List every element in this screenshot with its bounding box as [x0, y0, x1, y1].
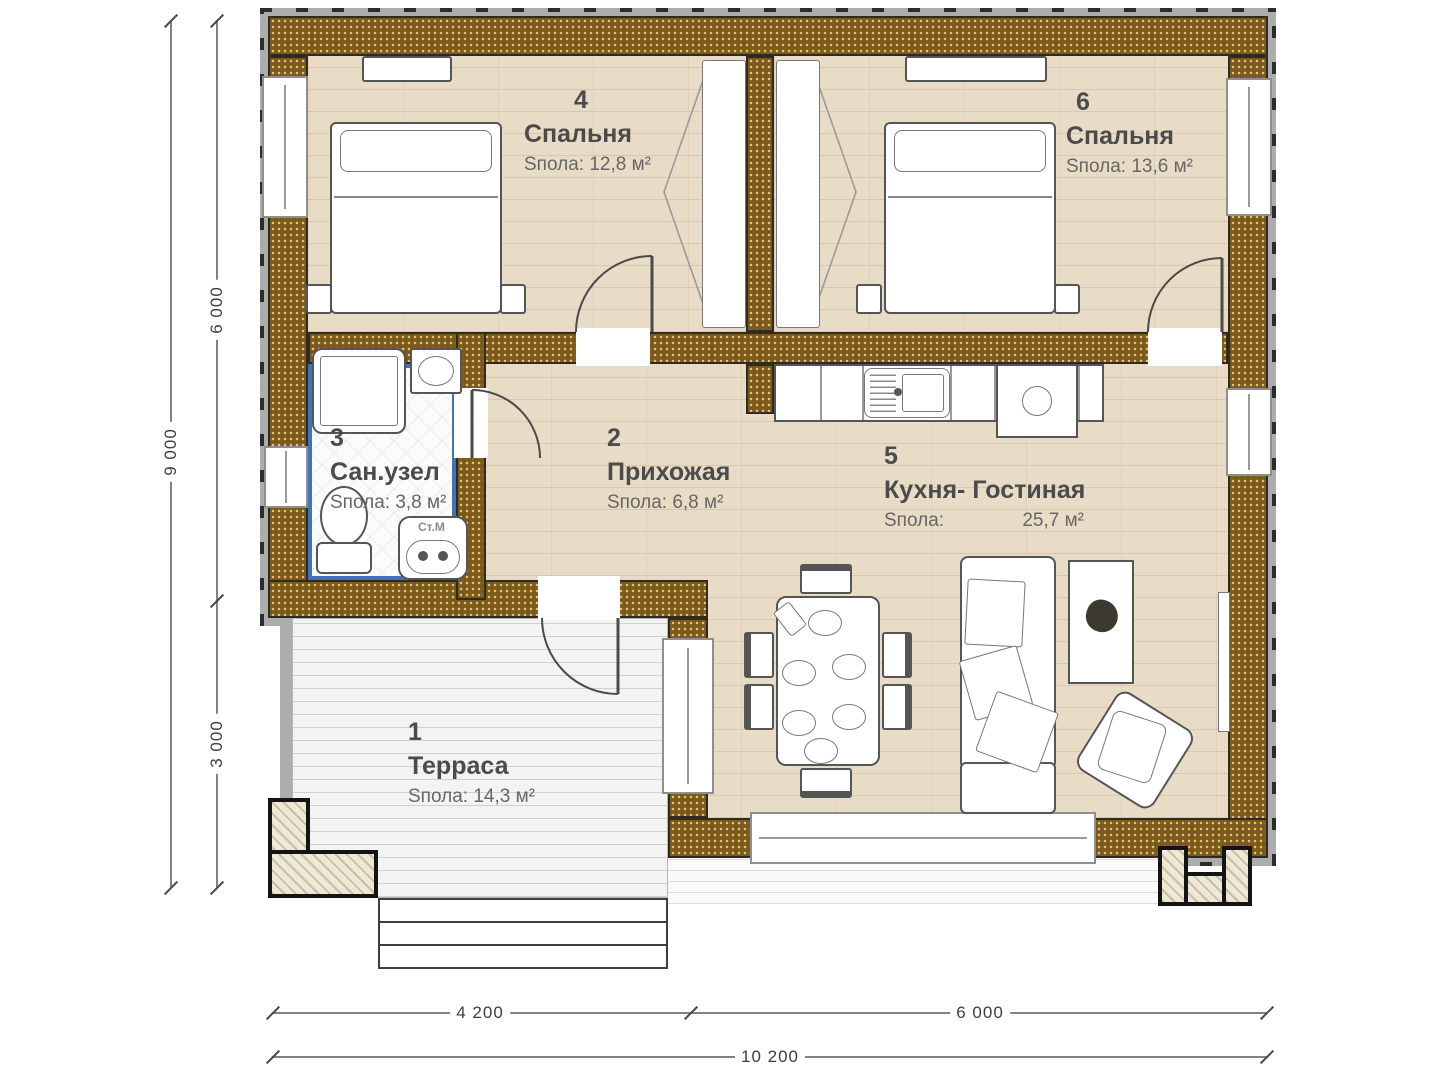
shower-tray: [320, 356, 398, 426]
counter-divider: [950, 366, 952, 420]
room-name: Прихожая: [607, 460, 730, 485]
room-number: 1: [408, 720, 535, 745]
sofa-chaise: [960, 762, 1056, 814]
plate: [808, 610, 842, 636]
bedroom6-blanket-line: [888, 196, 1052, 198]
washer-knob-left: [418, 551, 428, 561]
plate: [832, 704, 866, 730]
wall-hall-kitchen-stub: [746, 364, 774, 414]
window-bedroom6-right: [1226, 78, 1272, 216]
dim-bottom-left: 4 200: [450, 1002, 510, 1024]
kitchen-faucet: [894, 388, 902, 396]
dim-line-bottom-segments: [272, 1012, 1268, 1014]
room-area: Sпола: 25,7 м²: [884, 511, 1084, 530]
room-area: Sпола: 6,8 м²: [607, 493, 730, 512]
dining-chair-right-2: [882, 684, 912, 730]
counter-divider: [862, 366, 864, 420]
dim-bottom-total: 10 200: [735, 1046, 805, 1068]
bedroom4-nightstand-right: [500, 284, 526, 314]
bedroom6-nightstand-left: [856, 284, 882, 314]
bedroom6-door-opening: [1148, 328, 1222, 366]
dim-left-lower: 3 000: [206, 714, 228, 774]
plate: [782, 710, 816, 736]
room-label-bathroom: 3 Сан.узел Sпола: 3,8 м²: [330, 426, 446, 512]
walkway: [668, 858, 1160, 904]
terrace-step-1: [378, 898, 668, 923]
kitchen-sink-basin: [902, 374, 944, 412]
bathroom-door-opening: [454, 388, 488, 458]
room-area-value: 25,7 м²: [1022, 511, 1084, 530]
bedroom4-pillow: [340, 130, 492, 172]
bathroom-sink-bowl: [418, 356, 454, 386]
window-bathroom-left: [264, 446, 308, 508]
corner-post-right-arm-left: [1158, 846, 1188, 906]
dining-chair-left-2: [744, 684, 774, 730]
terrace-step-3: [378, 944, 668, 969]
window-terrace-living: [662, 638, 714, 794]
room-area: Sпола: 12,8 м²: [524, 155, 651, 174]
wall-bedroom-divider: [746, 56, 774, 332]
room-name: Спальня: [1066, 124, 1193, 149]
washer-knob-right: [438, 551, 448, 561]
room-number: 4: [574, 88, 651, 113]
bedroom6-wardrobe: [776, 60, 820, 328]
bedroom4-door-opening: [576, 328, 650, 366]
plate: [832, 654, 866, 680]
bedroom4-blanket-line: [334, 196, 498, 198]
room-name: Кухня- Гостиная: [884, 478, 1085, 503]
room-area: Sпола: 3,8 м²: [330, 493, 446, 512]
radiator: [1218, 592, 1230, 732]
room-number: 6: [1076, 90, 1193, 115]
washing-machine-drum: [406, 540, 460, 574]
room-label-hallway: 2 Прихожая Sпола: 6,8 м²: [607, 426, 730, 512]
hob-burner: [1022, 386, 1052, 416]
washing-machine-label: Ст.М: [418, 520, 445, 534]
counter-divider: [994, 366, 996, 420]
counter-divider: [820, 366, 822, 420]
corner-post-right-arm-right: [1222, 846, 1252, 906]
room-label-kitchen-living: 5 Кухня- Гостиная Sпола: 25,7 м²: [884, 444, 1085, 530]
room-area: Sпола: 14,3 м²: [408, 787, 535, 806]
room-label-bedroom4: 4 Спальня Sпола: 12,8 м²: [524, 88, 651, 174]
dining-chair-left-1: [744, 632, 774, 678]
terrace-post-left-horizontal: [268, 850, 378, 898]
dining-chair-right-1: [882, 632, 912, 678]
window-living-south: [750, 812, 1096, 864]
room-label-terrace: 1 Терраса Sпола: 14,3 м²: [408, 720, 535, 806]
window-living-right: [1226, 388, 1272, 476]
wall-exterior-bottom-left: [268, 580, 708, 618]
facade-ticks-top: [260, 8, 1276, 12]
plate: [782, 660, 816, 686]
room-label-bedroom6: 6 Спальня Sпола: 13,6 м²: [1066, 90, 1193, 176]
dim-left-upper: 6 000: [206, 280, 228, 340]
window-bedroom4-left: [262, 76, 308, 218]
room-number: 3: [330, 426, 446, 451]
bedroom4-dresser: [362, 56, 452, 82]
room-name: Сан.узел: [330, 460, 446, 485]
floor-plan: Ст.М 4 Спальня Sпола: 12: [0, 0, 1440, 1080]
entrance-door-opening: [538, 576, 620, 620]
room-number: 2: [607, 426, 730, 451]
dim-left-total: 9 000: [160, 422, 182, 482]
kitchen-sink-drainer: [870, 374, 896, 412]
room-name: Терраса: [408, 754, 535, 779]
bedroom6-pillow: [894, 130, 1046, 172]
dining-chair-top: [800, 564, 852, 594]
dining-chair-bottom: [800, 768, 852, 798]
room-name: Спальня: [524, 122, 651, 147]
bedroom6-dresser: [905, 56, 1047, 82]
plate: [804, 738, 838, 764]
bedroom4-nightstand-left: [306, 284, 332, 314]
bedroom6-nightstand-right: [1054, 284, 1080, 314]
wall-exterior-top: [268, 16, 1268, 56]
sofa-cushion: [964, 579, 1025, 648]
room-number: 5: [884, 444, 1085, 469]
counter-divider: [1078, 366, 1080, 420]
dim-bottom-right: 6 000: [950, 1002, 1010, 1024]
toilet-tank: [316, 542, 372, 574]
terrace-step-2: [378, 921, 668, 946]
bedroom4-wardrobe: [702, 60, 746, 328]
facade-ticks-right: [1272, 8, 1276, 866]
room-area: Sпола: 13,6 м²: [1066, 157, 1193, 176]
room-area-prefix: Sпола:: [884, 511, 944, 530]
